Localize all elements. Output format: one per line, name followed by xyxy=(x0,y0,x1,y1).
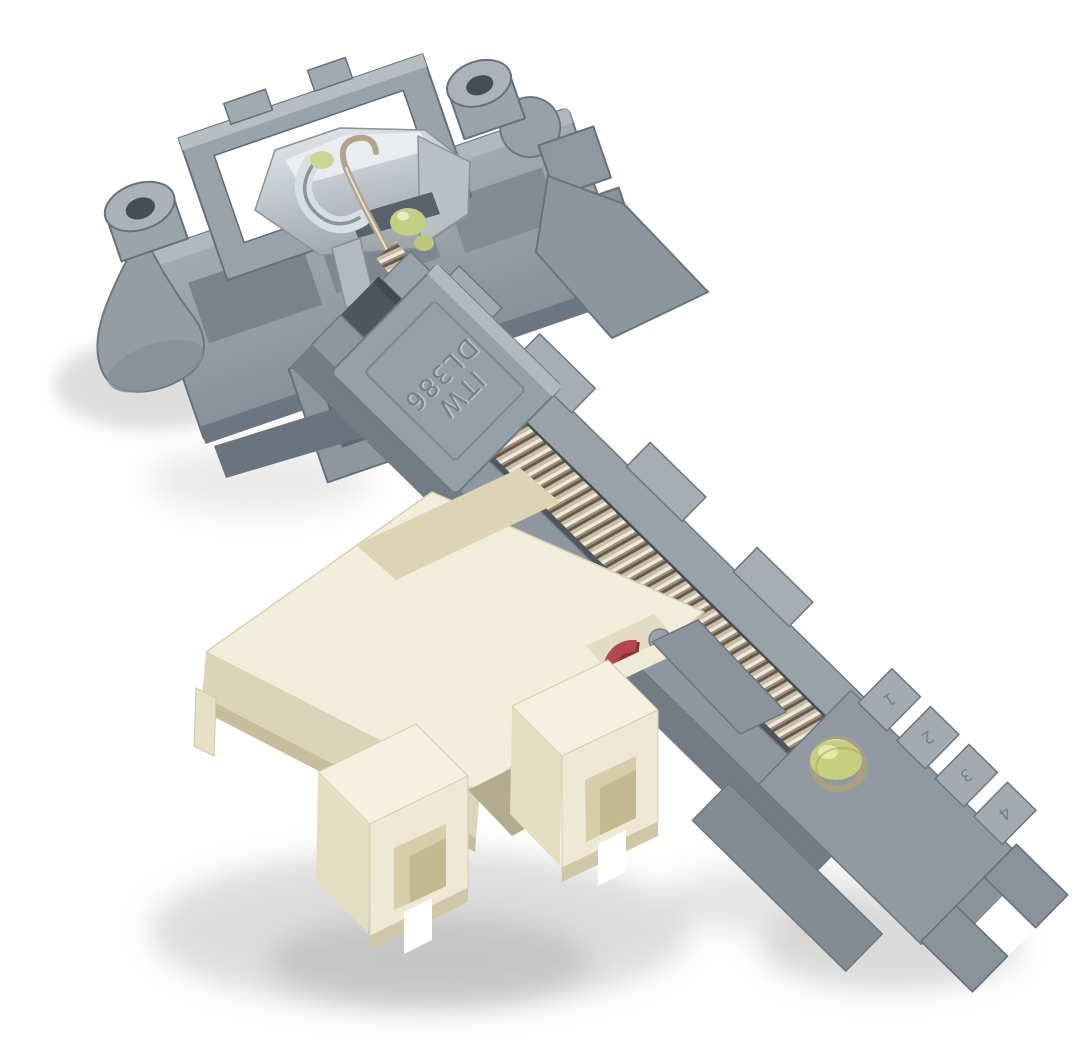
housing-side-tab xyxy=(194,688,216,756)
photo-canvas: 1 2 3 4 ITW ITW DL386 DL386 xyxy=(0,0,1079,1062)
latch-assembly-photo: 1 2 3 4 ITW ITW DL386 DL386 xyxy=(0,0,1079,1062)
